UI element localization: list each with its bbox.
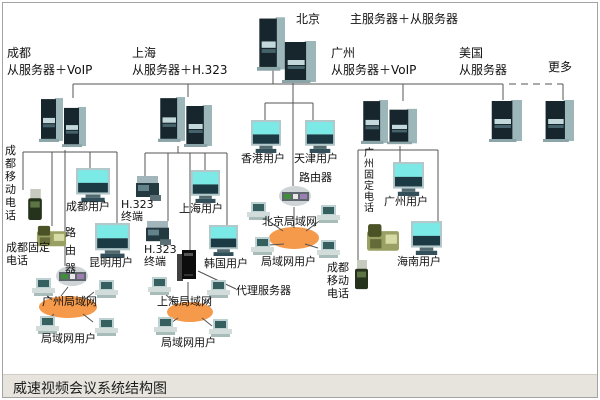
guangzhou-user-monitor-icon — [393, 162, 424, 196]
beijing-lan-label: 北京局域网 — [262, 216, 317, 228]
chengdu-fixed-phone-label: 成都固定电话 — [6, 241, 52, 267]
beijing-lan-laptop-icon — [250, 237, 275, 255]
beijing-router-label: 路由器 — [299, 172, 332, 184]
guangzhou-lan-laptop-icon — [94, 280, 119, 298]
beijing-server-tower-2-icon — [282, 40, 316, 84]
beijing-city-label: 北京 — [296, 13, 320, 26]
shanghai-lan-label: 上海局域网 — [157, 296, 212, 308]
shanghai-server-tower-2-icon — [184, 104, 212, 148]
chengdu-server-tower-icon — [39, 97, 63, 143]
guangzhou-user-label: 广州用户 — [384, 196, 428, 208]
guangzhou-lan-label: 广州局域网 — [42, 296, 97, 308]
hainan-user-label: 海南用户 — [397, 256, 441, 268]
guangzhou-lan-users-label: 局域网用户 — [41, 333, 96, 345]
usa-city-label: 美国 — [459, 47, 483, 60]
chengdu-mobile-phone-icon — [24, 189, 45, 222]
beijing-router-icon — [279, 185, 312, 207]
beijing-lan-laptop-icon — [316, 240, 341, 258]
guangzhou-fixed-phone-label: 广州固定电话 — [364, 148, 376, 214]
chengdu-city-label: 成都 — [7, 47, 31, 60]
chengdu-user-monitor-icon — [76, 168, 110, 202]
guangzhou-lan-laptop-icon — [94, 318, 119, 336]
shanghai-user-monitor-icon — [191, 170, 220, 203]
guangzhou-role-label: 从服务器＋VoIP — [331, 64, 416, 77]
tianjin-user-label: 天津用户 — [294, 153, 338, 165]
diagram-title: 威速视频会议系统结构图 — [13, 378, 167, 398]
shanghai-lan-laptop-icon — [147, 277, 172, 295]
chengdu-mobile-phone-label: 成都移动电话 — [5, 144, 18, 222]
hongkong-user-label: 香港用户 — [241, 153, 285, 165]
more-server-tower-icon — [543, 99, 574, 143]
tianjin-user-monitor-icon — [305, 120, 335, 153]
h323-terminal-2-label: H.323 终端 — [144, 244, 177, 268]
guangzhou-city-label: 广州 — [331, 47, 355, 60]
beijing-lan-users-label: 局域网用户 — [261, 256, 316, 268]
shanghai-city-label: 上海 — [132, 47, 156, 60]
title-bar: 威速视频会议系统结构图 — [3, 374, 597, 397]
more-label: 更多 — [548, 61, 572, 74]
shanghai-user-label: 上海用户 — [179, 203, 223, 215]
usa-role-label: 从服务器 — [459, 64, 507, 77]
shanghai-lan-users-label: 局域网用户 — [161, 337, 216, 349]
chengdu-mobile-phone-2-icon — [351, 260, 371, 291]
shanghai-lan-laptop-icon — [153, 317, 178, 335]
chengdu-user-label: 成都用户 — [66, 201, 110, 213]
shanghai-role-label: 从服务器＋H.323 — [132, 64, 228, 77]
shanghai-lan-laptop-icon — [208, 319, 233, 337]
hongkong-user-monitor-icon — [251, 120, 281, 153]
beijing-lan-laptop-icon — [316, 205, 341, 223]
network-topology-diagram: 北京 主服务器＋从服务器 成都 从服务器＋VoIP 上海 从服务器＋H.323 … — [0, 0, 600, 400]
chengdu-mobile-phone-2-label: 成都移动电话 — [327, 261, 351, 300]
hainan-user-monitor-icon — [411, 221, 442, 255]
kunming-user-monitor-icon — [95, 223, 130, 258]
beijing-server-tower-icon — [257, 16, 285, 72]
proxy-server-icon — [176, 250, 198, 282]
korea-user-label: 韩国用户 — [204, 258, 248, 270]
usa-server-tower-icon — [489, 99, 522, 143]
guangzhou-fixed-phone-icon — [366, 223, 400, 253]
beijing-role-label: 主服务器＋从服务器 — [350, 13, 458, 26]
guangzhou-server-tower-icon — [361, 99, 388, 145]
proxy-server-label: 代理服务器 — [236, 285, 291, 297]
guangzhou-lan-laptop-icon — [31, 278, 56, 296]
shanghai-server-tower-icon — [158, 96, 185, 143]
kunming-user-label: 昆明用户 — [89, 257, 133, 269]
chengdu-role-label: 从服务器＋VoIP — [7, 64, 92, 77]
korea-user-monitor-icon — [209, 225, 238, 256]
guangzhou-server-tower-2-icon — [387, 108, 417, 145]
chengdu-server-tower-2-icon — [62, 106, 86, 148]
chengdu-router-label: 路由器 — [65, 224, 78, 278]
h323-terminal-label: H.323 终端 — [121, 199, 154, 223]
